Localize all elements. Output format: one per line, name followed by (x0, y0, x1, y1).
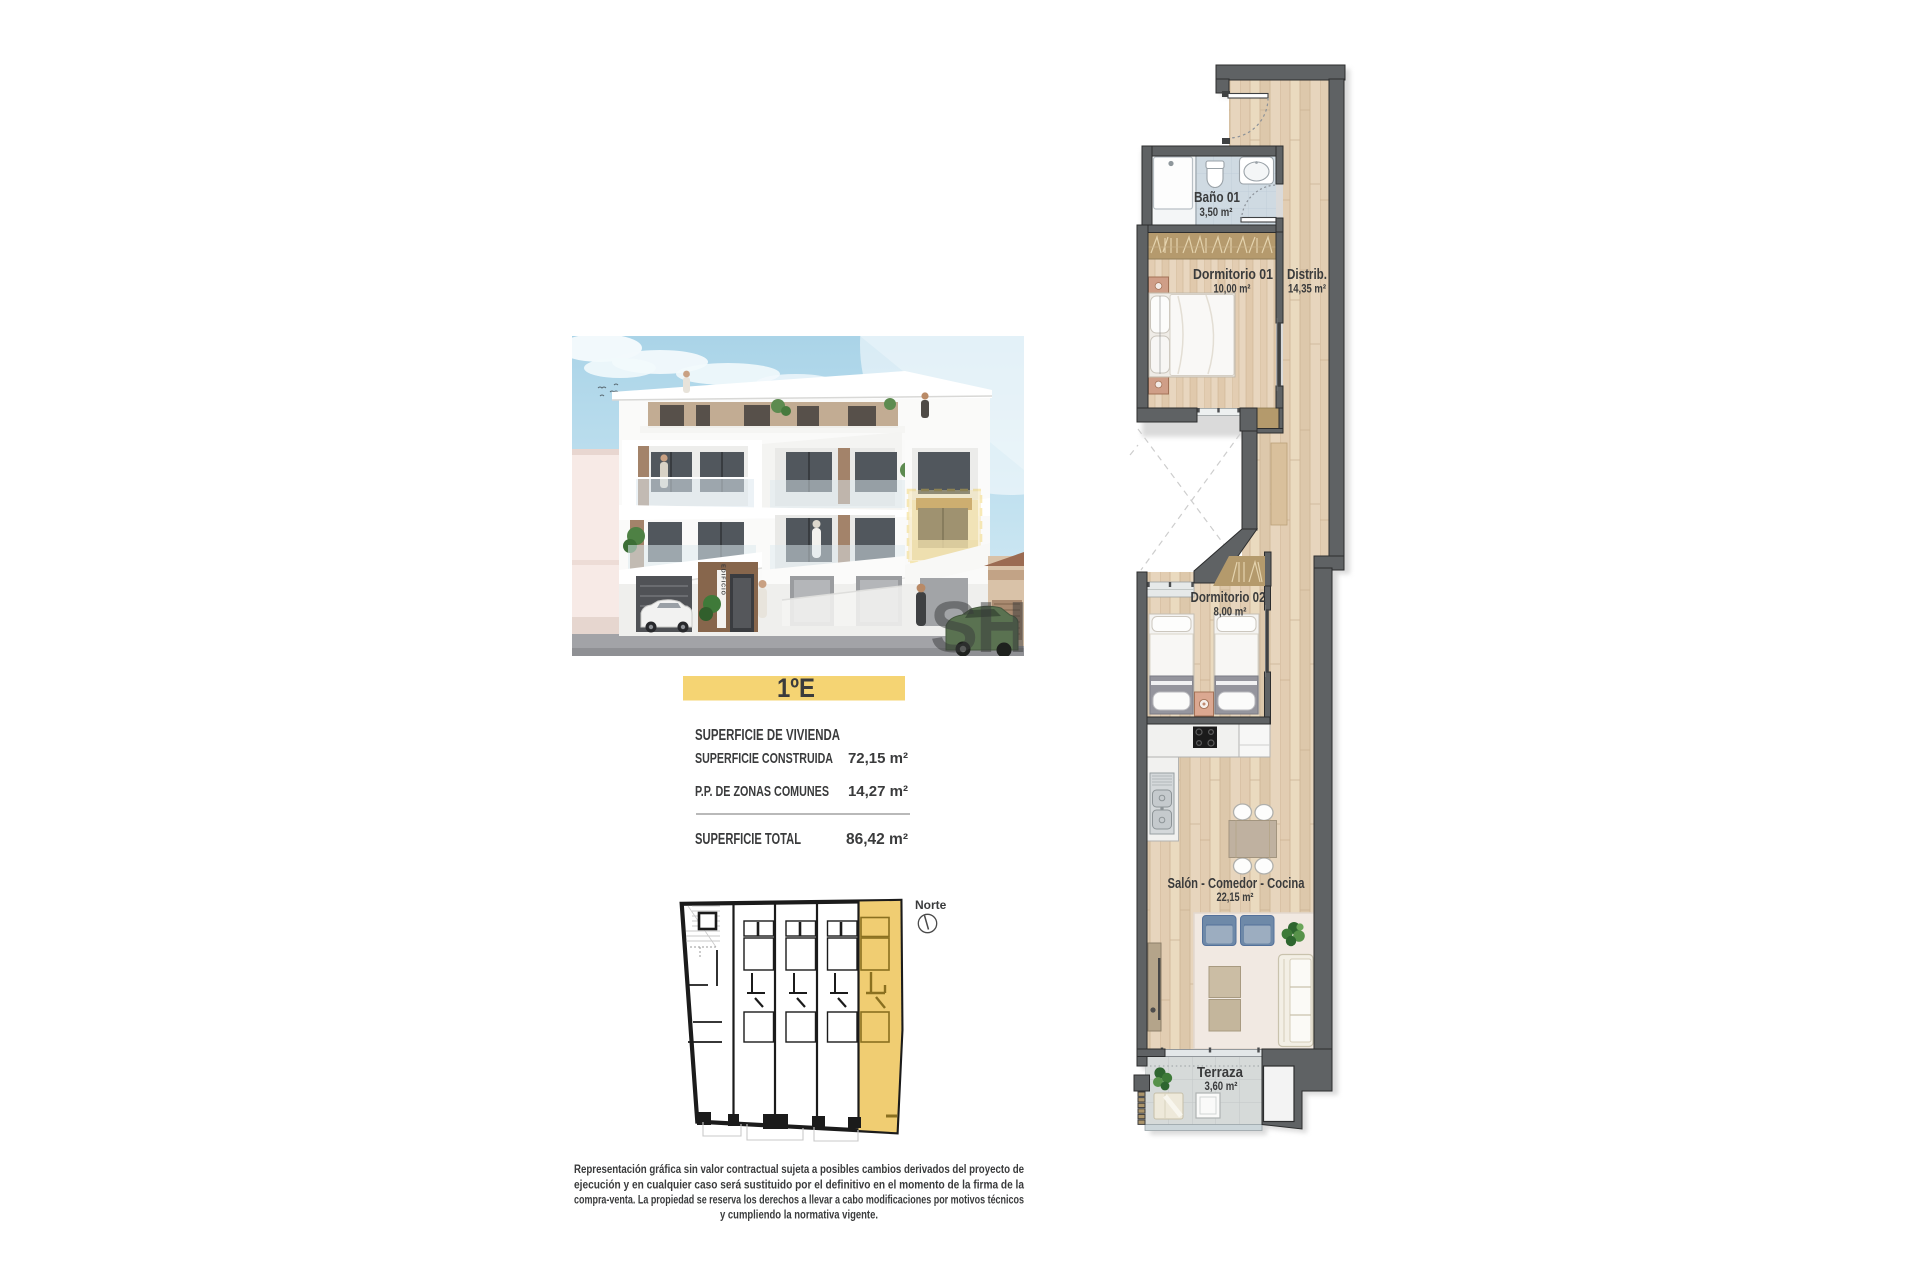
svg-text:14,35 m²: 14,35 m² (1288, 282, 1326, 296)
svg-text:72,15 m²: 72,15 m² (848, 750, 908, 767)
svg-text:y cumpliendo la normativa vige: y cumpliendo la normativa vigente. (720, 1208, 878, 1222)
svg-text:SH: SH (930, 588, 1026, 668)
svg-text:86,42 m²: 86,42 m² (846, 831, 908, 848)
svg-text:compra-venta. La propiedad se: compra-venta. La propiedad se reserva lo… (574, 1193, 1024, 1207)
svg-text:Norte: Norte (915, 898, 947, 912)
svg-text:22,15 m²: 22,15 m² (1217, 890, 1254, 904)
svg-text:SUPERFICIE DE VIVIENDA: SUPERFICIE DE VIVIENDA (695, 727, 840, 744)
svg-text:10,00 m²: 10,00 m² (1214, 282, 1251, 296)
svg-text:EDIFICIO: EDIFICIO (720, 564, 726, 596)
svg-text:8,00 m²: 8,00 m² (1214, 605, 1247, 619)
svg-text:1ºE: 1ºE (777, 673, 815, 703)
svg-text:SUPERFICIE TOTAL: SUPERFICIE TOTAL (695, 831, 801, 848)
svg-text:P.P. DE ZONAS COMUNES: P.P. DE ZONAS COMUNES (695, 783, 829, 800)
svg-text:14,27 m²: 14,27 m² (848, 783, 908, 800)
svg-text:Representación gráfica sin val: Representación gráfica sin valor contrac… (574, 1162, 1024, 1176)
svg-text:3,60 m²: 3,60 m² (1205, 1079, 1238, 1093)
svg-text:ejecución y en cualquier caso: ejecución y en cualquier caso será susti… (574, 1178, 1024, 1192)
svg-text:SUPERFICIE CONSTRUIDA: SUPERFICIE CONSTRUIDA (695, 750, 833, 767)
svg-text:Baño 01: Baño 01 (1194, 190, 1240, 206)
svg-text:3,50 m²: 3,50 m² (1200, 205, 1233, 219)
